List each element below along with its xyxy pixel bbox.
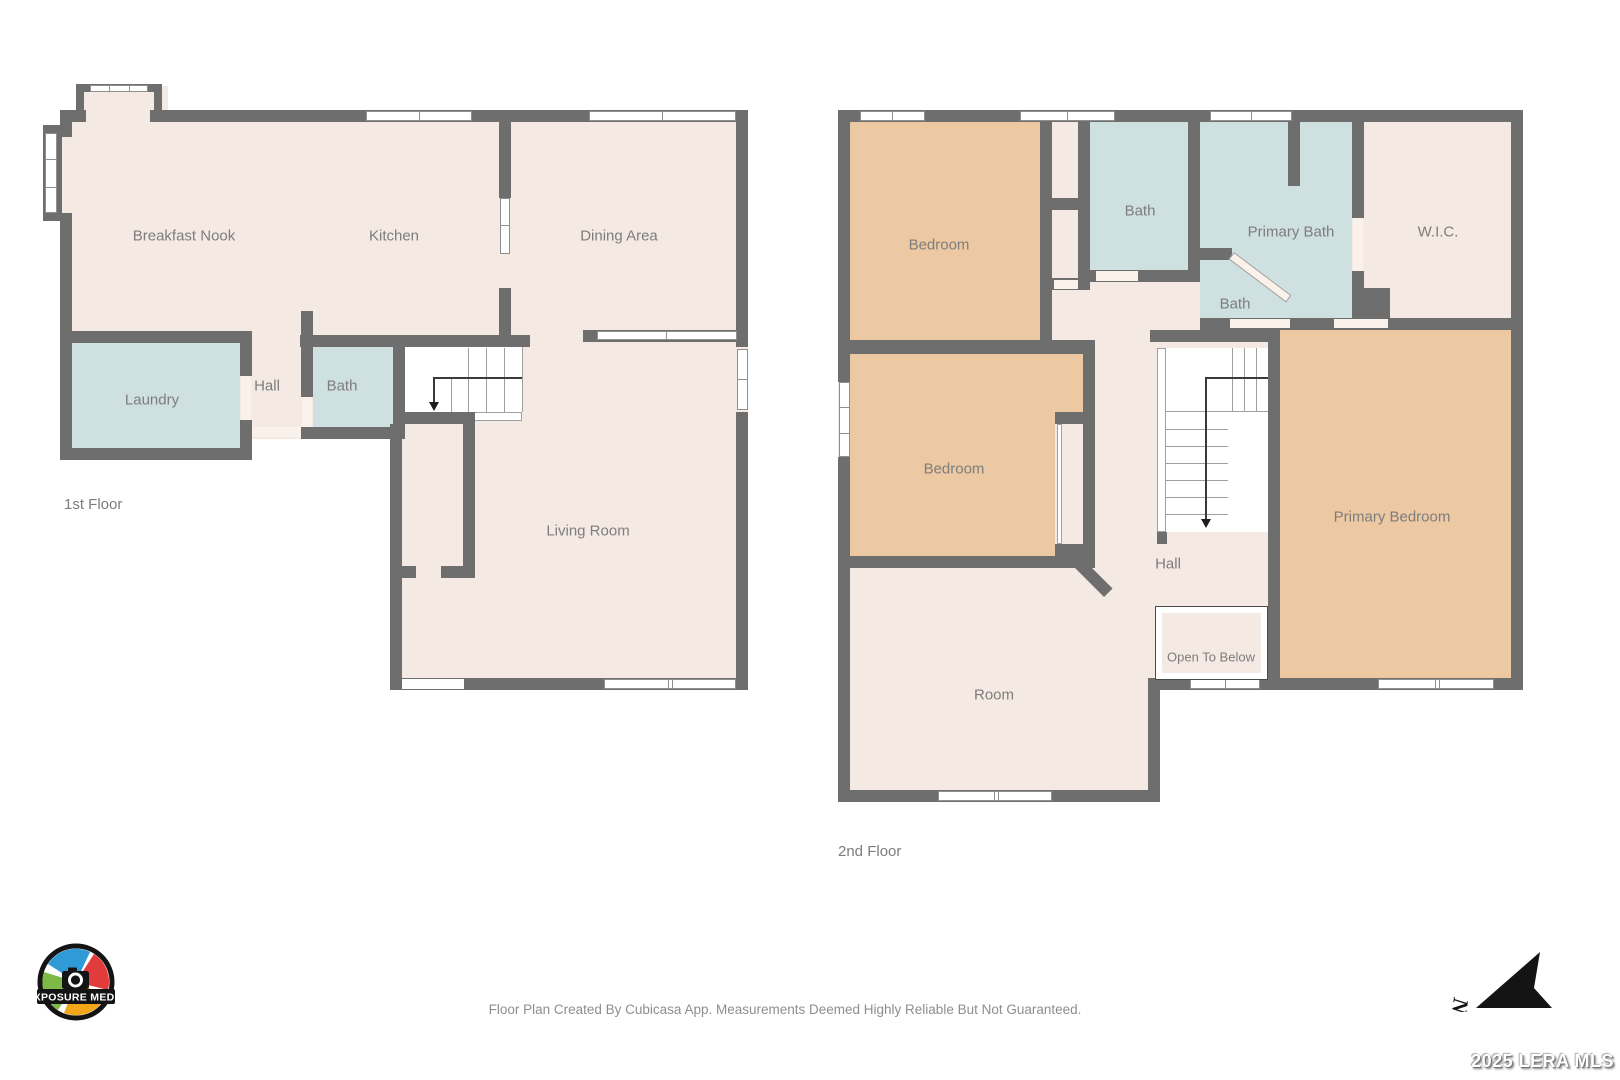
primary-bedroom-door xyxy=(1334,319,1388,328)
floor1-top-band xyxy=(60,110,748,342)
bath-top-window xyxy=(1020,111,1115,121)
room-label-bath-f1: Bath xyxy=(327,378,358,395)
room-label-bath-top: Bath xyxy=(1125,203,1156,220)
room-label-living-room: Living Room xyxy=(546,523,629,540)
room-label-primary-bath: Primary Bath xyxy=(1248,224,1335,241)
room-label-room: Room xyxy=(974,687,1014,704)
room-label-primary-bedroom: Primary Bedroom xyxy=(1334,509,1451,526)
stair-down-arrow xyxy=(429,402,439,411)
floorplan-page: { "floor1": { "title": "1st Floor", "roo… xyxy=(0,0,1620,1080)
primary-bedroom-bottom-window xyxy=(1378,679,1494,689)
bath1-door xyxy=(302,397,312,427)
bay-window xyxy=(90,85,148,92)
bedroom-mid-fill xyxy=(850,354,1083,558)
stair2-down-arrow xyxy=(1201,519,1211,528)
floor1-title: 1st Floor xyxy=(64,496,122,513)
room-label-hall-f1: Hall xyxy=(254,378,280,395)
room-label-dining-area: Dining Area xyxy=(580,228,658,245)
entry-door xyxy=(252,427,301,437)
north-arrow-icon xyxy=(1476,952,1552,1008)
bath-small-door xyxy=(1230,319,1290,328)
bedroom-top-fill xyxy=(850,122,1040,340)
room-bottom-window xyxy=(938,791,1052,801)
kitchen-top-window xyxy=(366,111,472,121)
exposure-media-logo: EXPOSURE MEDIA xyxy=(34,940,118,1024)
stair-edge xyxy=(470,412,522,421)
mls-watermark: 2025 LERA MLS xyxy=(1471,1051,1614,1072)
stair-path-line xyxy=(433,377,522,379)
livingroom-door xyxy=(402,679,464,689)
kitchen-divider-window xyxy=(500,198,510,254)
bedroom-top-window xyxy=(860,111,925,121)
room-label-breakfast-nook: Breakfast Nook xyxy=(133,228,236,245)
primary-bath-window xyxy=(1210,111,1292,121)
livingroom-right-window xyxy=(737,349,748,410)
left-bump-window xyxy=(45,133,57,213)
dining-passthrough xyxy=(597,331,737,340)
room-label-bedroom-mid: Bedroom xyxy=(924,461,985,478)
floor2-stairwell xyxy=(1157,348,1268,532)
stair2-path-line xyxy=(1205,377,1268,379)
floor1-stairwell xyxy=(405,347,523,412)
room-label-bedroom-top: Bedroom xyxy=(909,237,970,254)
floor2-stair-rail xyxy=(1157,348,1166,532)
room-label-hall-f2: Hall xyxy=(1155,556,1181,573)
room-label-laundry: Laundry xyxy=(125,392,179,409)
primary-bedroom-fill xyxy=(1280,330,1511,678)
compass-north-label: N xyxy=(1447,995,1474,1012)
room-label-wic: W.I.C. xyxy=(1418,224,1459,241)
laundry-door xyxy=(241,376,251,420)
room-label-bath-small: Bath xyxy=(1220,296,1251,313)
floor2-title: 2nd Floor xyxy=(838,843,901,860)
bath-top-door xyxy=(1096,271,1138,281)
disclaimer-text: Floor Plan Created By Cubicasa App. Meas… xyxy=(0,1002,1570,1017)
closet-slider xyxy=(1057,424,1062,544)
room-label-kitchen: Kitchen xyxy=(369,228,419,245)
open-below-window xyxy=(1190,679,1260,689)
room-label-open-to-below: Open To Below xyxy=(1167,650,1255,665)
bath-top-fill xyxy=(1090,122,1188,270)
dining-top-window xyxy=(589,111,736,121)
wic-door xyxy=(1353,218,1363,271)
livingroom-bottom-window xyxy=(604,679,736,689)
bedroom-mid-left-window xyxy=(839,382,850,457)
compass: N xyxy=(1438,948,1558,1012)
logo-text: EXPOSURE MEDIA xyxy=(34,992,118,1004)
